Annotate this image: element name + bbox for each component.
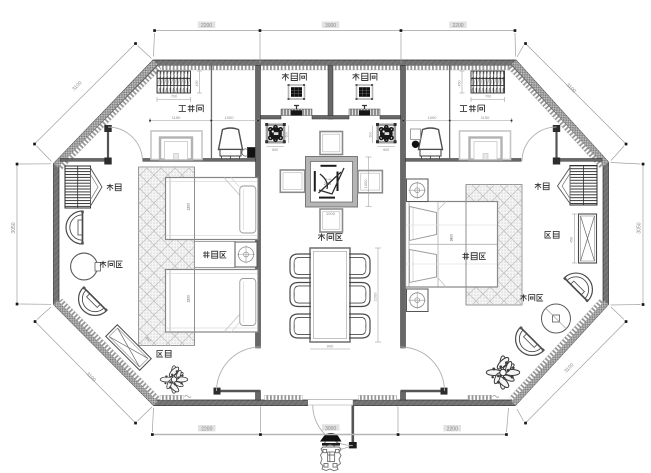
svg-text:1000: 1000 bbox=[326, 211, 336, 216]
svg-text:3000: 3000 bbox=[325, 426, 336, 432]
svg-text:1200: 1200 bbox=[187, 295, 191, 303]
svg-text:2200: 2200 bbox=[447, 427, 458, 433]
svg-text:2200: 2200 bbox=[201, 23, 212, 29]
svg-text:2200: 2200 bbox=[201, 427, 212, 433]
svg-text:600: 600 bbox=[369, 132, 373, 138]
svg-text:1200: 1200 bbox=[187, 203, 191, 211]
svg-text:600: 600 bbox=[383, 148, 389, 152]
svg-text:600: 600 bbox=[272, 148, 278, 152]
svg-text:1150: 1150 bbox=[172, 115, 181, 120]
svg-text:3050: 3050 bbox=[637, 222, 643, 233]
svg-text:1000: 1000 bbox=[363, 179, 368, 189]
svg-text:3050: 3050 bbox=[11, 222, 17, 233]
svg-text:450: 450 bbox=[195, 81, 199, 87]
svg-text:1000: 1000 bbox=[428, 115, 438, 120]
svg-text:600: 600 bbox=[285, 132, 289, 138]
svg-text:2200: 2200 bbox=[452, 23, 463, 29]
svg-text:2200: 2200 bbox=[373, 292, 378, 302]
svg-text:900: 900 bbox=[327, 344, 334, 349]
svg-text:700: 700 bbox=[171, 95, 177, 99]
svg-text:700: 700 bbox=[485, 95, 491, 99]
svg-text:1150: 1150 bbox=[481, 115, 490, 120]
svg-text:1000: 1000 bbox=[225, 115, 235, 120]
svg-text:3000: 3000 bbox=[325, 23, 336, 29]
svg-text:450: 450 bbox=[458, 81, 462, 87]
svg-text:2750: 2750 bbox=[324, 182, 331, 186]
svg-text:450: 450 bbox=[570, 237, 574, 243]
svg-text:1800: 1800 bbox=[450, 234, 454, 242]
